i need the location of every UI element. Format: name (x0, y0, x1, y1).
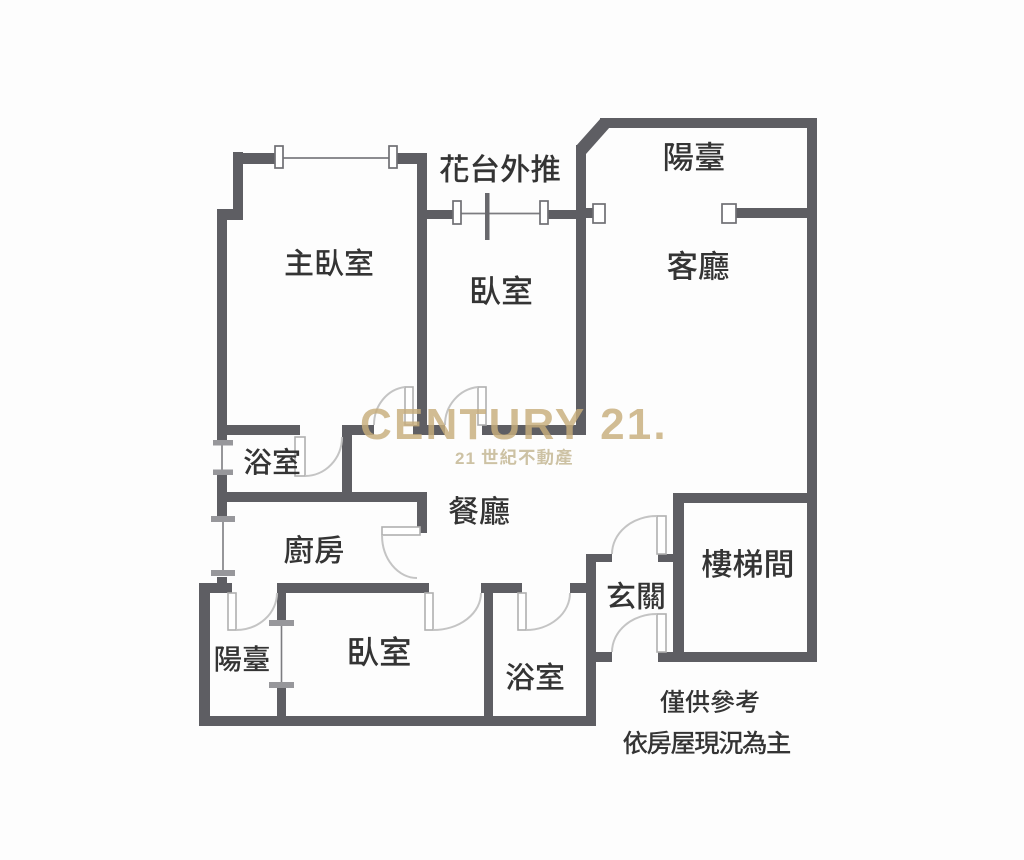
svg-text:CENTURY 21.: CENTURY 21. (360, 400, 668, 449)
svg-text:21: 21 (455, 449, 476, 468)
